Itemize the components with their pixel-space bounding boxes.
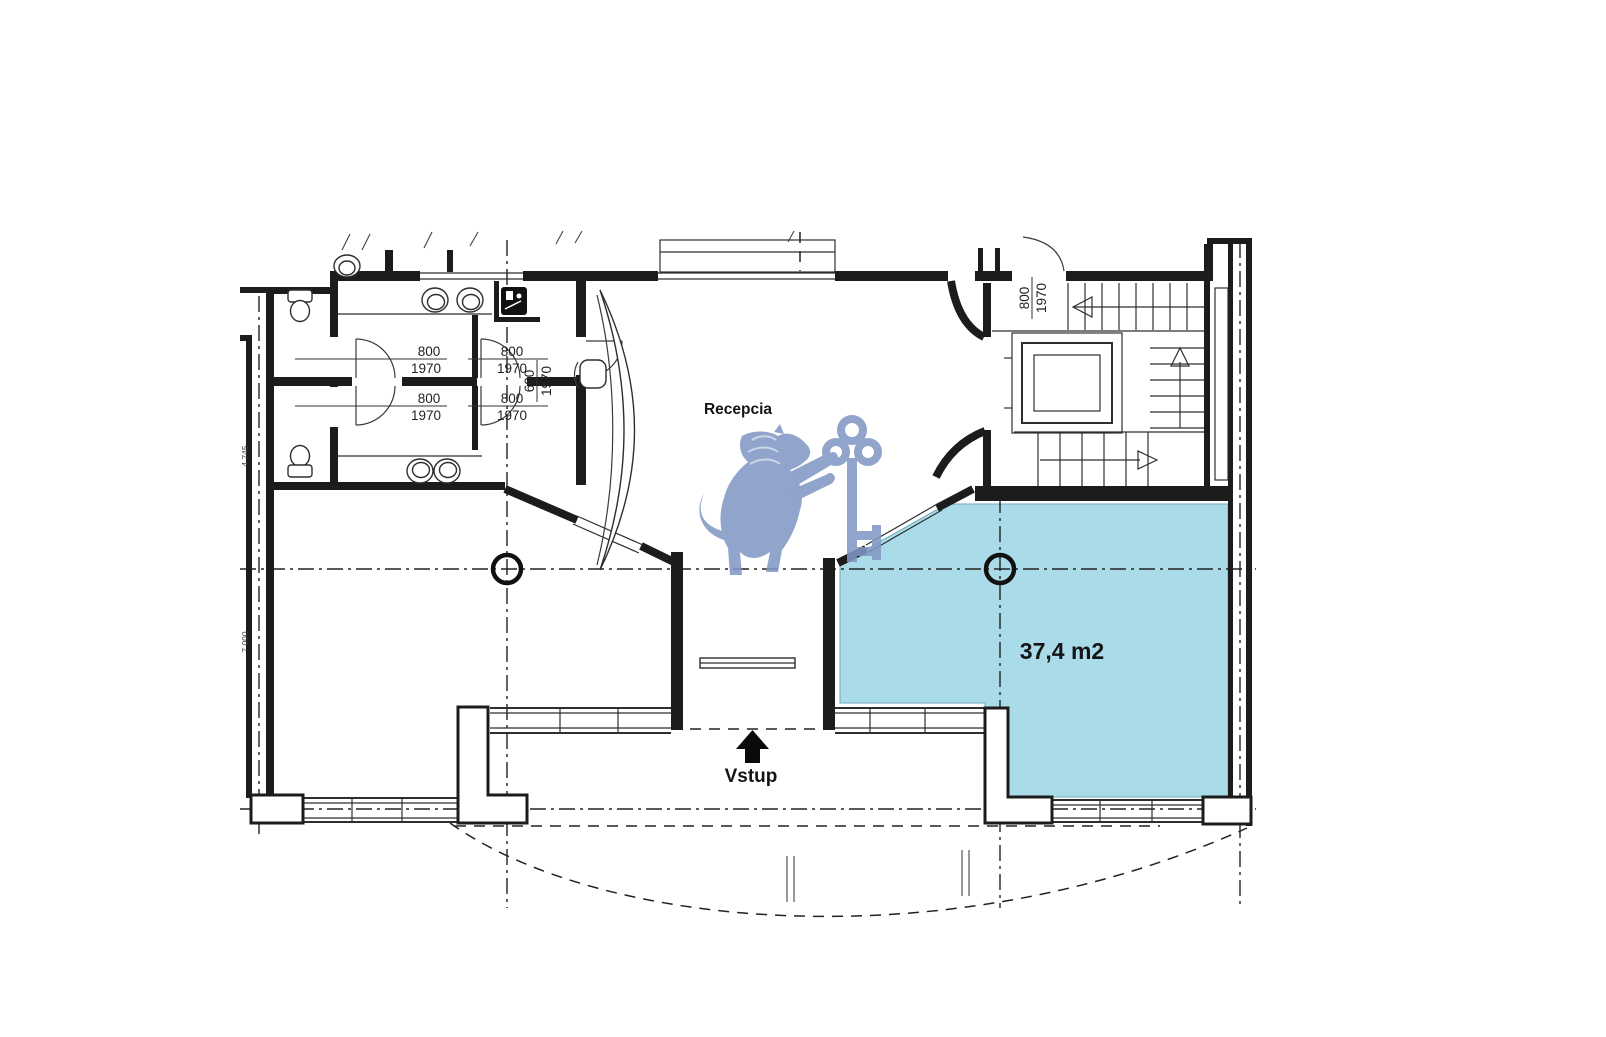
entrance-vestibule (690, 658, 817, 729)
cleaning-closet-icon (501, 287, 527, 315)
toilet-icon (288, 290, 312, 322)
dim-label: 800 (501, 344, 524, 359)
dim-label: 800 (418, 344, 441, 359)
floor-plan-drawing: Recepcia 37,4 m2 Vstup 800 1970 800 1970… (0, 0, 1606, 1037)
canopy-arc (450, 823, 1247, 916)
floor-plan-page: Recepcia 37,4 m2 Vstup 800 1970 800 1970… (0, 0, 1606, 1037)
urinal-icon (334, 255, 360, 277)
dim-label: 1970 (497, 408, 527, 423)
dim-label-rotated: 1970 (1034, 283, 1049, 313)
sink-icon (338, 456, 482, 483)
watermark-lion-key-logo (699, 419, 881, 575)
dim-label: 1970 (411, 408, 441, 423)
stair-door-arc (1023, 237, 1064, 271)
entrance-label: Vstup (725, 766, 778, 787)
edge-dim-upper: 4 745 (240, 445, 250, 467)
dim-label-rotated: 600 (522, 370, 537, 393)
toilet-icon (288, 446, 312, 478)
canopy-post-marks (787, 850, 969, 902)
entrance-arrow-icon (736, 730, 769, 763)
edge-dim-lower: 7 000 (240, 631, 250, 653)
dim-label: 1970 (411, 361, 441, 376)
highlighted-area-label: 37,4 m2 (1020, 638, 1104, 664)
door-dimension-labels: 800 1970 800 1970 800 1970 800 1970 600 … (295, 277, 1049, 423)
elevator-icon (1004, 333, 1122, 433)
top-canopy-outline (660, 240, 835, 272)
sanitary-fixtures (288, 255, 622, 483)
dim-label-rotated: 800 (1017, 287, 1032, 310)
dim-label: 800 (501, 391, 524, 406)
sink-icon (338, 288, 492, 314)
reception-label: Recepcia (704, 401, 772, 418)
dim-label-rotated: 1970 (539, 366, 554, 396)
dim-label: 800 (418, 391, 441, 406)
